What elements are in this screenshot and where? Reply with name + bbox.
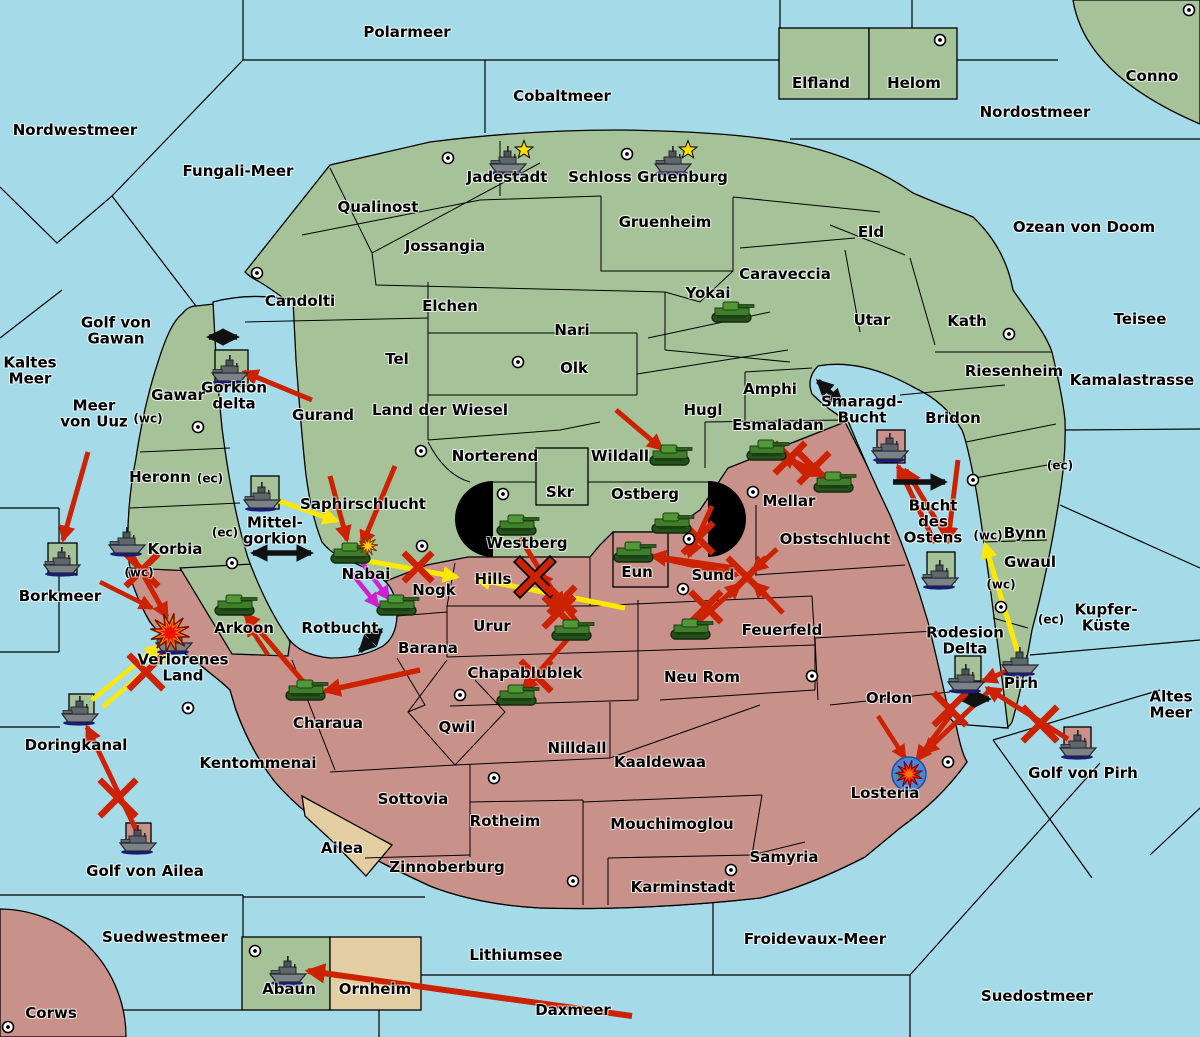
supply-center-icon — [968, 475, 979, 486]
supply-center-icon — [498, 489, 509, 500]
supply-center-icon — [417, 541, 428, 552]
supply-center-icon — [726, 865, 737, 876]
supply-center-icon — [807, 671, 818, 682]
supply-center-icon — [183, 703, 194, 714]
supply-center-icon — [943, 757, 954, 768]
supply-center-icon — [996, 602, 1007, 613]
supply-center-icon — [1004, 329, 1015, 340]
map-canvas — [0, 0, 1200, 1037]
supply-center-icon — [678, 584, 689, 595]
supply-center-icon — [416, 446, 427, 457]
province-box[interactable] — [779, 28, 869, 99]
supply-center-icon — [443, 153, 454, 164]
supply-center-icon — [489, 773, 500, 784]
supply-center-icon — [455, 690, 466, 701]
supply-center-icon — [1184, 5, 1195, 16]
supply-center-icon — [513, 357, 524, 368]
supply-center-icon — [935, 35, 946, 46]
province-box[interactable] — [536, 448, 588, 505]
supply-center-icon — [252, 268, 263, 279]
supply-center-icon — [568, 876, 579, 887]
supply-center-icon — [622, 149, 633, 160]
supply-center-icon — [748, 487, 759, 498]
supply-center-icon — [684, 534, 695, 545]
battle-explosion — [892, 757, 926, 791]
supply-center-icon — [227, 558, 238, 569]
game-map[interactable]: PolarmeerCobaltmeerNordostmeerNordwestme… — [0, 0, 1200, 1037]
supply-center-icon — [3, 1022, 14, 1033]
supply-center-icon — [250, 946, 261, 957]
supply-center-icon — [193, 422, 204, 433]
